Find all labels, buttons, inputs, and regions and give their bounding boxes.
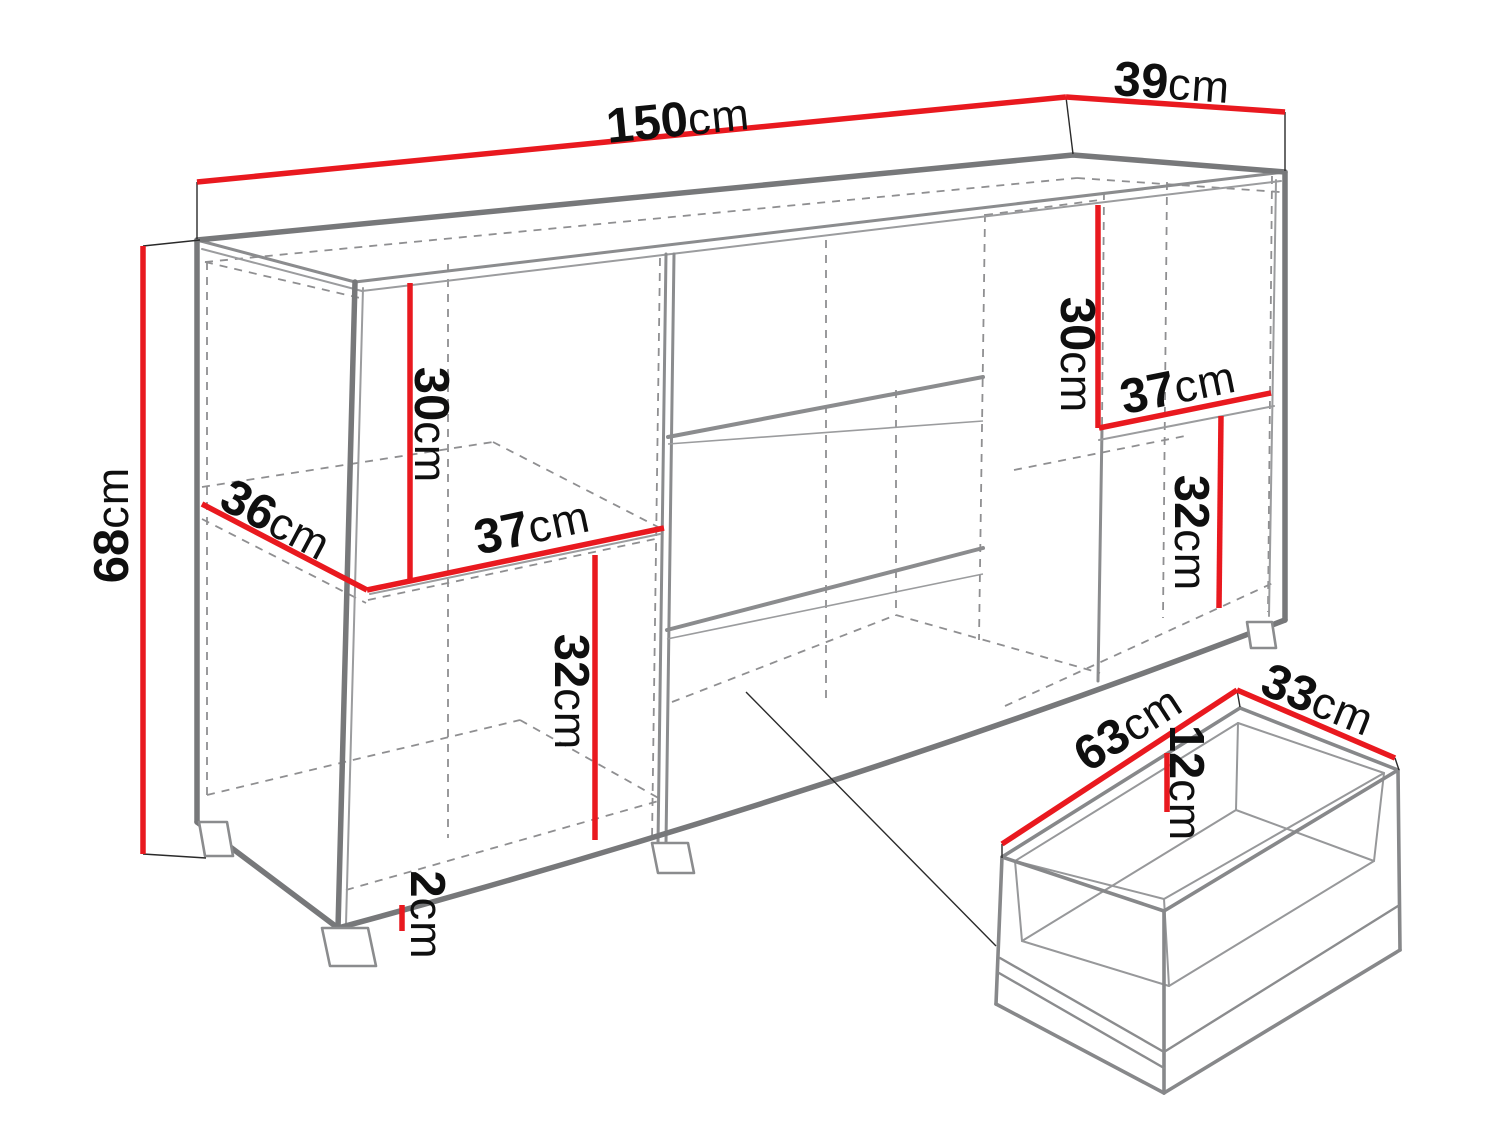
label-overall-width: 150cm — [604, 86, 752, 154]
label-right-lower-height: 32cm — [1164, 475, 1218, 592]
label-plinth-height: 2cm — [400, 870, 454, 959]
dimension-diagram: 150cm 39cm 68cm 36cm 37cm 30cm 32cm 2cm … — [0, 0, 1500, 1125]
label-overall-depth: 39cm — [1112, 52, 1232, 114]
label-overall-height: 68cm — [85, 467, 139, 584]
diagram-canvas: 150cm 39cm 68cm 36cm 37cm 30cm 32cm 2cm … — [0, 0, 1500, 1125]
cabinet-outline — [197, 155, 1285, 928]
label-left-shelf-width: 37cm — [469, 488, 594, 565]
label-right-shelf-width: 37cm — [1116, 349, 1241, 425]
cabinet-feet — [199, 622, 1276, 966]
leader-line — [746, 692, 996, 946]
label-drawer-inner-height: 12cm — [1159, 725, 1213, 842]
label-left-lower-height: 32cm — [544, 634, 598, 751]
dim-line-right-lower-height — [1219, 416, 1221, 608]
label-left-upper-height: 30cm — [404, 367, 458, 484]
label-right-upper-height: 30cm — [1050, 297, 1104, 414]
label-left-shelf-depth: 36cm — [212, 469, 340, 571]
label-drawer-depth: 33cm — [1254, 653, 1382, 747]
